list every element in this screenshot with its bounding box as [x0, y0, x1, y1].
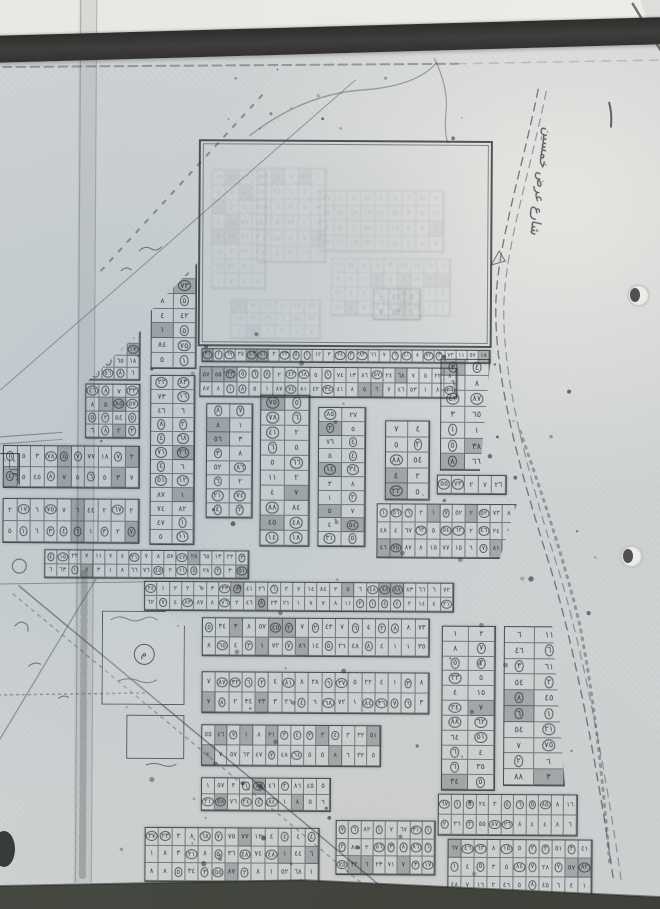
plot-cell: ٨: [213, 382, 225, 397]
plot-cell: ٢: [319, 422, 342, 436]
plot-cell: ٥٤: [342, 518, 365, 532]
plot-cell: ٢: [212, 565, 224, 579]
plot-cell: ٧: [266, 746, 279, 766]
plot-cell: ٦: [45, 564, 57, 578]
plot-cell: ٧: [503, 540, 516, 558]
plot-number: ٣: [477, 658, 485, 669]
plot-number: ٨: [157, 419, 165, 430]
plot-cell: ٣: [505, 659, 535, 675]
plot-cell: ٧: [113, 385, 126, 398]
plot-number: ١: [215, 350, 222, 359]
plot-cell: ٦٨: [173, 432, 195, 446]
plot-cell: ١: [465, 423, 489, 439]
plot-number: ١٨: [290, 532, 303, 543]
punch-hole-shadow: [623, 549, 633, 563]
plot-cell: ٥: [464, 795, 477, 815]
plot-cell: ٦: [86, 424, 99, 437]
plot-cell: ٧: [230, 404, 253, 418]
plot-cell: ٨: [342, 477, 365, 491]
plot-cell: ٥: [237, 367, 249, 382]
plot-cell: ٣: [386, 839, 398, 857]
plot-cell: ٧٥: [261, 396, 285, 411]
plot-cell: ١: [240, 725, 253, 745]
plot-number: ٣: [449, 361, 458, 373]
plot-cell: ٦٤: [442, 730, 468, 745]
plot-number: ٦: [293, 412, 301, 423]
plot-cell: ٦٧: [225, 349, 236, 361]
plot-cell: ٥: [310, 368, 322, 383]
plot-cell: ١: [152, 323, 174, 338]
plot-cell: ١: [302, 350, 313, 362]
plot-cell: ٣٧: [146, 828, 159, 846]
plot-number: ٢: [306, 731, 314, 741]
plot-cell: ٧: [293, 583, 305, 597]
plot-number: ٨: [47, 471, 55, 481]
plot-cell: ٤٦: [462, 840, 475, 858]
plot-cell: ٦: [268, 583, 280, 597]
plot-cell: ٢: [125, 447, 139, 468]
plot-cell: ٦١: [535, 659, 565, 675]
plot-number: ١: [178, 517, 186, 528]
plot-cell: ٨: [389, 619, 402, 638]
plot-number: ٦: [245, 677, 253, 687]
plot-cell: ٤: [502, 795, 515, 815]
plot-number: ٤: [281, 832, 289, 842]
plot-cell: ٤: [152, 308, 174, 323]
plot-number: ٨: [258, 598, 266, 607]
plot-cell: ٣: [469, 656, 495, 671]
plot-cell: ٤٨: [239, 846, 252, 864]
plot-number: ٣٣: [449, 673, 461, 684]
plot-cell: ٤٦: [215, 725, 228, 745]
plot-cell: ٥: [514, 840, 527, 858]
plot-cell: ٥: [420, 369, 432, 384]
plot-cell: ٢: [404, 597, 416, 611]
plot-number: ٧: [339, 825, 347, 835]
plot-number: ٤٨: [290, 517, 303, 528]
plot-number: ١: [369, 599, 377, 608]
plot-cell: ٣: [172, 828, 185, 846]
plot-cell: ٤: [291, 726, 304, 746]
plot-cell: ٢: [376, 619, 389, 638]
plot-cell: ٢٣: [225, 367, 237, 382]
plot-cell: ٣: [489, 795, 502, 815]
plot-cell: ٢٥: [336, 856, 348, 874]
plot-cell: ٤٧: [253, 746, 266, 766]
plot-number: ٢٣: [225, 369, 236, 378]
plot-cell: ٣: [207, 582, 219, 596]
plot-cell: ٨: [402, 619, 415, 638]
plot-cell: ٨: [296, 673, 309, 693]
plot-cell: ٣٥: [415, 638, 428, 657]
plot-cell: ٦: [505, 627, 535, 643]
plot-cell: ٨: [152, 294, 174, 309]
plot-cell: ٦: [71, 499, 85, 521]
plot-cell: ٦: [85, 467, 99, 488]
plot-number: ٧٥: [542, 740, 555, 752]
plot-number: ٢: [529, 844, 537, 854]
plot-number: ٤: [349, 451, 357, 461]
plot-cell: ٢١: [185, 846, 198, 864]
plot-cell: ٤٥: [31, 467, 45, 488]
plot-cell: ٦: [564, 815, 577, 835]
plot-cell: ٧٦: [141, 564, 153, 578]
plot-number: ٥: [214, 849, 222, 859]
plot-cell: ٦٤: [291, 746, 304, 766]
plot-cell: ١: [279, 846, 292, 864]
plot-cell: ٦: [285, 411, 309, 426]
plot-cell: ٢: [415, 505, 428, 523]
plot-cell: ١٨: [127, 356, 140, 368]
plot-number: ١٧: [422, 860, 433, 870]
plot-number: ٦: [451, 747, 459, 758]
plot-cell: ٨٨: [386, 453, 408, 469]
plot-cell: ٥٥: [213, 367, 225, 382]
plot-cell: ٦: [173, 404, 195, 418]
plot-cell: ١٢: [172, 474, 194, 488]
plot-cell: ١٥: [428, 540, 441, 558]
plot-number: ٥: [180, 265, 188, 276]
plot-cell: ٢٨: [189, 551, 201, 565]
plot-cell: ٧: [81, 564, 93, 578]
plot-cell: ٤٥: [153, 564, 165, 578]
plot-cell: ٨٧: [489, 815, 502, 835]
plot-number: ١٤: [324, 464, 336, 474]
plot-cell: ٦٥: [216, 637, 229, 656]
plot-cell: ٢: [354, 597, 366, 611]
plot-cell: ٦: [428, 584, 440, 598]
plot-cell: ٢: [465, 522, 478, 540]
plot-cell: ٨: [159, 863, 172, 881]
plot-cell: ٥: [285, 441, 309, 456]
plot-cell: ٥: [174, 264, 196, 279]
plot-cell: ٨٥: [113, 398, 126, 411]
plot-cell: ١: [145, 846, 158, 864]
plot-cell: ٢: [239, 864, 252, 882]
plot-cell: ٥١: [151, 474, 173, 488]
plot-cell: ٧: [102, 332, 115, 344]
plot-block: ١٥٧٣١٨٥٤٦٢٨٦٤٥٥٢١٥٨٧٦٢٤٤٨٤١٨٥٦: [201, 777, 331, 812]
plot-cell: ٧٤: [252, 846, 265, 864]
plot-cell: ١٤: [416, 598, 428, 612]
plot-cell: ٥٤: [440, 522, 453, 540]
plot-cell: ١: [256, 637, 269, 656]
plot-number: ١: [324, 370, 331, 379]
plot-number: ٤٧: [177, 553, 188, 562]
plot-cell: ٦: [465, 540, 478, 558]
plot-number: ٣٣: [219, 584, 230, 593]
plot-cell: ٦٥: [115, 356, 128, 368]
plot-number: ٦: [214, 476, 222, 487]
plot-cell: ٥: [441, 438, 465, 454]
plot-cell: ٦: [441, 375, 465, 391]
plot-cell: ٥: [468, 775, 494, 790]
plot-cell: ٧٦: [115, 332, 128, 344]
plot-cell: ٨: [330, 597, 342, 611]
plot-cell: ٨٤: [362, 693, 375, 713]
plot-cell: ٢: [99, 411, 112, 424]
plot-cell: ٥٥: [476, 815, 489, 835]
plot-cell: ٤٧: [151, 516, 173, 530]
plot-number: ١: [71, 566, 78, 575]
plot-cell: ٨٤: [513, 858, 526, 876]
plot-cell: ٤: [57, 521, 71, 543]
plot-number: ٣: [412, 860, 420, 870]
plot-number: ٨: [365, 641, 373, 651]
plot-cell: ٣١: [318, 532, 341, 546]
plot-cell: ٦٥: [465, 407, 489, 423]
plot-cell: ٥٢: [207, 461, 230, 475]
plot-number: ٨: [102, 425, 110, 435]
plot-cell: ٨٢: [172, 502, 194, 516]
plot-cell: ٧: [318, 597, 330, 611]
plot-cell: ٧٥: [174, 338, 196, 353]
plot-cell: ٣٤: [442, 775, 468, 790]
plot-number: ٢: [356, 599, 364, 608]
plot-cell: ٤: [342, 436, 365, 450]
plot-number: ٦٤: [291, 750, 302, 760]
plot-number: ١: [19, 526, 27, 536]
plot-cell: ١: [389, 673, 402, 693]
plot-cell: ٢٢: [224, 551, 236, 565]
plot-cell: ٣٤: [242, 692, 255, 712]
plot-number: ٤٦: [87, 386, 99, 396]
plot-cell: ٦: [261, 441, 285, 456]
plot-cell: ٥: [71, 467, 85, 488]
plot-cell: ٦٨: [395, 368, 407, 383]
plot-cell: ٢٢: [151, 376, 173, 390]
plot-number: ٤: [60, 526, 68, 536]
plot-cell: ٨: [127, 332, 140, 344]
plot-number: ٦٧: [225, 351, 235, 360]
plot-cell: ٣: [31, 446, 45, 467]
plot-cell: ٤: [319, 518, 342, 532]
plot-cell: ١٥: [57, 550, 69, 564]
plot-number: ٨٣: [182, 598, 193, 607]
plot-cell: ١: [69, 564, 81, 578]
plot-number: ٤٢: [286, 370, 297, 379]
plot-number: ١: [448, 424, 457, 436]
plot-cell: ٣: [44, 521, 58, 543]
plot-cell: ٤٨: [285, 516, 309, 531]
plot-cell: ٤٨: [367, 583, 379, 597]
plot-number: ٨: [515, 692, 524, 704]
plot-block: ٣٤٦٨٤٢٨٧٣٦٥١١٥٣٨٨٦٦: [440, 359, 491, 471]
plot-cell: ٨٤: [266, 795, 279, 811]
plot-cell: ٧: [125, 467, 139, 488]
plot-cell: ٥٦: [390, 504, 403, 522]
plot-number: ٣: [387, 843, 395, 853]
plot-number: ٦: [87, 472, 95, 482]
plot-cell: ٥١: [236, 565, 248, 579]
plot-cell: ٢٣: [373, 857, 385, 875]
plot-number: ٥: [88, 412, 96, 422]
plot-block: ٦٥٣٧٨٥٧٧٧١٨٧٢٤٥٤٥٨٧٥٦٥٣٧: [3, 445, 140, 489]
plot-cell: ٤: [253, 795, 266, 811]
plot-cell: ٧: [58, 467, 72, 488]
plot-cell: ٣: [172, 846, 185, 864]
plot-cell: ٨: [291, 795, 304, 811]
plot-cell: ٧: [202, 692, 215, 712]
plot-cell: ٢٤: [490, 523, 503, 541]
plot-cell: ١١: [342, 597, 354, 611]
plot-number: ٢٤: [241, 797, 252, 807]
plot-cell: ٣: [229, 618, 242, 637]
plot-cell: ١: [367, 597, 379, 611]
plot-cell: ١: [202, 778, 215, 794]
plot-cell: ٨: [44, 467, 58, 488]
plot-cell: ٥١: [468, 731, 494, 746]
plot-cell: ٤٤: [292, 846, 305, 864]
plot-cell: ٨: [488, 840, 501, 858]
plot-cell: ٥: [174, 294, 196, 309]
plot-number: ٧: [230, 730, 238, 740]
plot-cell: ٤: [442, 686, 468, 701]
plot-number: ٥٦: [373, 843, 384, 853]
plot-number: ٧: [529, 862, 537, 872]
plot-number: ٦: [324, 677, 332, 687]
small-lot: [126, 715, 184, 759]
plot-number: ٦: [351, 623, 359, 633]
plot-cell: ٤: [207, 503, 230, 517]
plot-cell: ٥: [100, 398, 113, 411]
plot-number: ٥: [325, 641, 333, 651]
plot-cell: ٧٢: [335, 693, 348, 713]
plot-cell: ٢٢: [386, 484, 408, 500]
plot-number: ٤٢: [446, 393, 459, 405]
plot-cell: ٤: [151, 432, 173, 446]
plot-cell: ٨٨: [379, 583, 391, 597]
plot-number: ٣٤: [347, 465, 359, 475]
plot-cell: ٧٥: [44, 499, 58, 521]
plot-cell: ١٧: [17, 499, 31, 521]
plot-cell: ١: [174, 353, 196, 368]
plot-cell: ٤: [305, 829, 318, 847]
plot-cell: ٨٨: [261, 501, 285, 516]
plot-cell: ٢: [274, 368, 286, 383]
mosque-lot: م: [101, 611, 185, 706]
plot-number: ٢٢: [390, 485, 403, 497]
plot-number: ٧١: [155, 447, 167, 458]
plot-number: ٧٤: [234, 490, 246, 501]
plot-cell: ٧: [552, 859, 565, 877]
plot-cell: ٢١: [534, 722, 564, 738]
plot-cell: ١: [349, 693, 362, 713]
plot-cell: ١٢: [252, 829, 265, 847]
plot-cell: ٨: [117, 564, 129, 578]
plot-cell: ٣: [207, 447, 230, 461]
plot-number: ٥: [477, 862, 485, 872]
plot-cell: ٨: [398, 839, 410, 857]
plot-number: ٥١: [155, 475, 167, 486]
map-content: ٣١١٦٧٣٥٤٦٤١٣٢٣٥١١٢٣٢٤٢٨٣٦٦٧٦٤١٨٨٢٣٧٣١١٥٧…: [0, 0, 660, 909]
plot-cell: ١: [373, 821, 385, 839]
plot-number: ٣٤: [449, 702, 461, 713]
plot-number: ٢: [236, 505, 244, 516]
plot-cell: ٧٥: [225, 828, 238, 846]
plot-cell: ٢: [304, 726, 317, 746]
plot-cell: ٧: [203, 672, 216, 692]
plot-number: ٢١: [211, 490, 223, 501]
plot-number: ٦٢: [453, 526, 464, 536]
plot-number: ٨: [91, 368, 99, 378]
plot-cell: ٥: [3, 521, 17, 543]
plot-number: ٦: [268, 442, 276, 453]
plot-cell: ٢: [283, 619, 296, 638]
plot-number: ٨٤: [362, 698, 374, 708]
plot-number: ٤٦: [462, 844, 473, 854]
plot-cell: ٢: [361, 839, 373, 857]
plot-number: ٦٨: [298, 370, 309, 379]
plot-cell: ٨: [207, 418, 230, 432]
plot-cell: ٨: [415, 674, 428, 694]
plot-cell: ٤: [362, 619, 375, 638]
plot-cell: ٤٢: [310, 382, 322, 397]
plot-cell: ٧: [342, 505, 365, 519]
plot-number: ٦٧: [112, 505, 124, 515]
plot-cell: ١: [443, 627, 469, 642]
plot-cell: ١: [451, 795, 464, 815]
plot-number: ٨٧: [216, 677, 228, 687]
plot-cell: ٢: [229, 503, 252, 517]
plot-cell: ٧: [478, 540, 491, 558]
plot-cell: ٦٨: [298, 368, 310, 383]
plot-cell: ١: [152, 264, 174, 279]
plot-number: ١: [180, 355, 188, 366]
plot-cell: ٤: [391, 597, 403, 611]
plot-cell: ٣٦: [225, 846, 238, 864]
plot-cell: ٦: [127, 368, 140, 380]
plot-cell: ٦: [194, 582, 206, 596]
plot-cell: ٦: [355, 583, 367, 597]
plot-cell: ٥٦: [102, 368, 115, 380]
plot-cell: ٢: [279, 779, 292, 795]
plot-number: ١٧: [18, 504, 30, 514]
plot-cell: ٨٥: [539, 795, 552, 815]
plot-cell: ٨: [199, 846, 212, 864]
plot-cell: ٣: [540, 840, 553, 858]
plot-cell: ٤١: [261, 426, 285, 441]
plot-cell: ٢: [170, 582, 182, 596]
plot-number: ٢: [312, 623, 320, 633]
plot-cell: ٣: [102, 344, 115, 356]
plot-cell: ٥٧: [371, 368, 383, 383]
plot-cell: ٥: [189, 565, 201, 579]
plot-cell: ٤: [375, 673, 388, 693]
plot-block: ٧٨٧٣٢٦٢٤٨١٨٢٨٦٣٧٥٢٢٤١٣٨٧٨٢٣٤٢٣٣٢٦٤٦٦٨٧٢١…: [201, 671, 429, 714]
plot-number: ٣٤: [322, 385, 333, 394]
plot-number: ٤: [331, 731, 339, 741]
plot-number: ٤: [381, 599, 389, 608]
plot-cell: ٨: [362, 638, 375, 657]
plot-cell: ٢: [407, 468, 429, 484]
plot-number: ٨٤: [514, 862, 525, 872]
plot-number: ٣: [238, 553, 245, 562]
plot-cell: ٦٧: [398, 821, 410, 839]
plot-number: ٨٧: [489, 820, 500, 830]
plot-cell: ٧٢: [441, 584, 453, 598]
plot-number: ٢٣: [280, 351, 290, 360]
plot-cell: ٤: [461, 858, 474, 876]
plot-cell: ٨: [552, 795, 565, 815]
plot-cell: ٨: [159, 846, 172, 864]
plot-cell: ٣: [342, 726, 355, 746]
plot-cell: ٤٥: [261, 516, 285, 531]
plot-number: ١٥: [501, 844, 512, 854]
plot-number: ٤١: [401, 352, 411, 361]
plot-cell: ٣: [269, 350, 280, 362]
plot-cell: ٢٢: [362, 673, 375, 693]
